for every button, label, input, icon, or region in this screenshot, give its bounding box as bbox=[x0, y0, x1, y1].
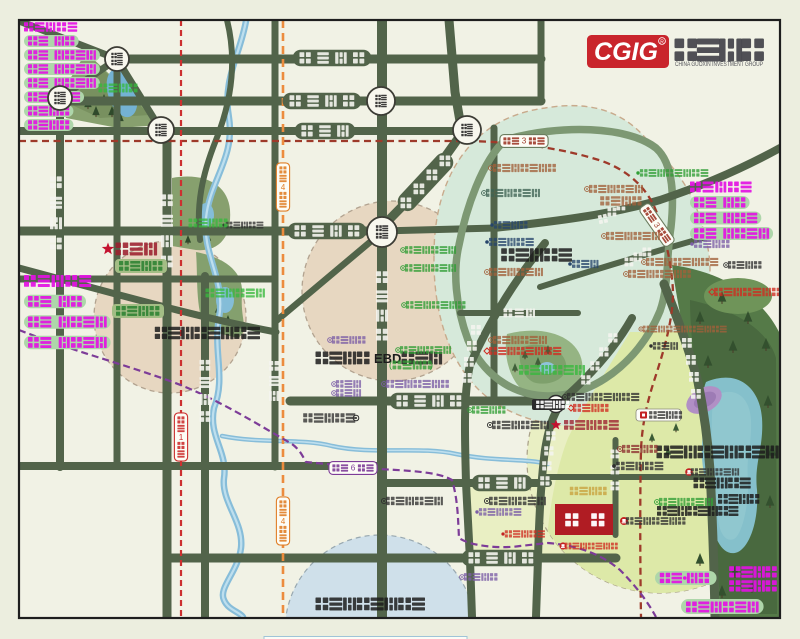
svg-text:4: 4 bbox=[281, 517, 286, 526]
svg-text:CHINA GUOXIN INVESTMENT GROUP: CHINA GUOXIN INVESTMENT GROUP bbox=[675, 62, 763, 68]
svg-text:1: 1 bbox=[179, 433, 184, 442]
svg-text:R: R bbox=[660, 39, 664, 45]
svg-text:EBD: EBD bbox=[374, 351, 401, 366]
svg-text:3: 3 bbox=[522, 137, 527, 146]
svg-text:(: ( bbox=[389, 360, 392, 370]
svg-text:6: 6 bbox=[351, 464, 356, 473]
svg-text:CGIG: CGIG bbox=[594, 38, 658, 66]
svg-text:): ) bbox=[430, 360, 433, 370]
svg-text:4: 4 bbox=[281, 183, 286, 192]
